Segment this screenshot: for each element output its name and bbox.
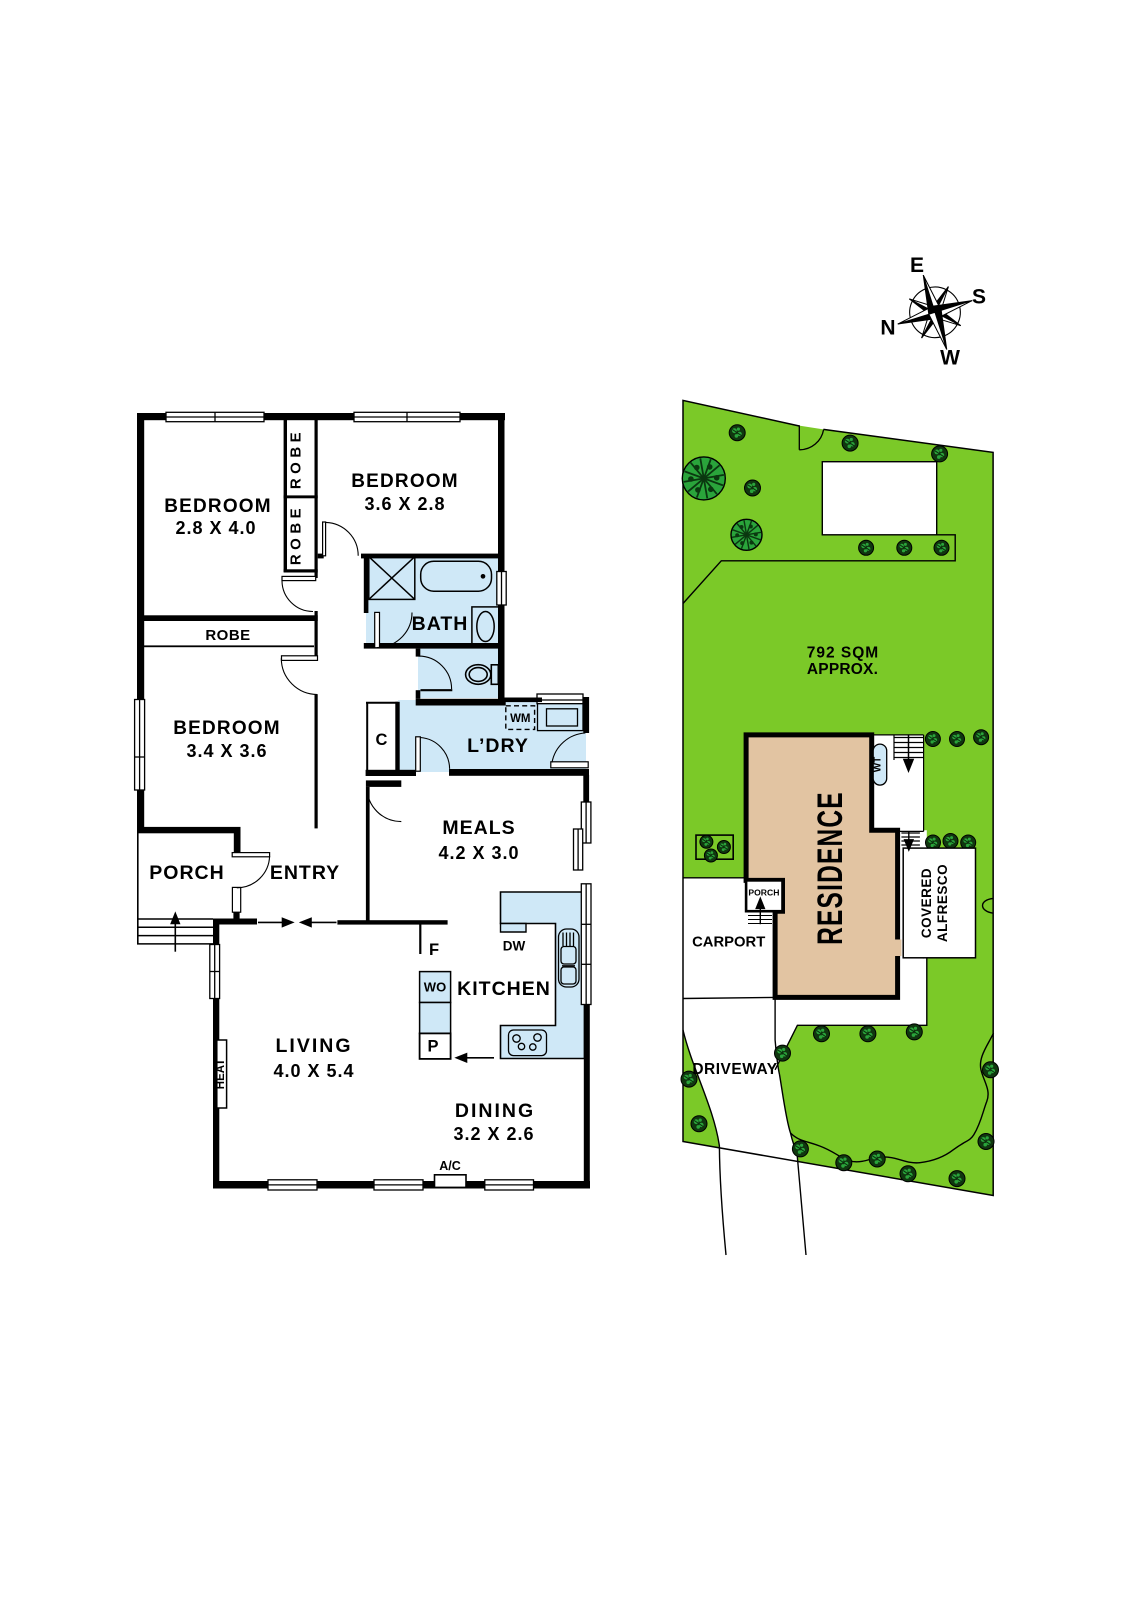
svg-text:A/C: A/C — [439, 1159, 461, 1173]
svg-text:3.4 X 3.6: 3.4 X 3.6 — [186, 741, 267, 761]
svg-text:APPROX.: APPROX. — [807, 661, 878, 678]
svg-text:ENTRY: ENTRY — [270, 862, 340, 884]
svg-text:4.0 X 5.4: 4.0 X 5.4 — [273, 1061, 354, 1081]
svg-text:COVERED: COVERED — [919, 868, 934, 938]
svg-text:RESIDENCE: RESIDENCE — [812, 791, 850, 945]
svg-text:BEDROOM: BEDROOM — [164, 496, 272, 517]
svg-text:PORCH: PORCH — [149, 862, 224, 884]
svg-text:4.2 X 3.0: 4.2 X 3.0 — [438, 843, 519, 863]
svg-text:PORCH: PORCH — [748, 888, 779, 898]
svg-text:CARPORT: CARPORT — [692, 935, 765, 951]
svg-text:792 SQM: 792 SQM — [807, 645, 879, 662]
svg-text:MEALS: MEALS — [442, 817, 515, 839]
svg-text:2.8 X 4.0: 2.8 X 4.0 — [175, 518, 256, 538]
svg-text:N: N — [880, 317, 895, 340]
svg-text:WO: WO — [424, 980, 446, 995]
svg-text:HEAT: HEAT — [215, 1059, 227, 1089]
svg-text:WT: WT — [873, 757, 884, 773]
svg-text:E: E — [910, 254, 924, 277]
svg-text:DINING: DINING — [455, 1100, 535, 1122]
svg-text:P: P — [427, 1038, 438, 1056]
svg-text:ROBE: ROBE — [205, 627, 250, 644]
svg-text:KITCHEN: KITCHEN — [457, 978, 551, 1000]
svg-text:ROBE: ROBE — [288, 504, 305, 565]
svg-text:LIVING: LIVING — [275, 1035, 352, 1057]
svg-text:DRIVEWAY: DRIVEWAY — [692, 1061, 777, 1078]
svg-text:L’DRY: L’DRY — [467, 735, 529, 757]
svg-text:WM: WM — [510, 713, 530, 725]
svg-text:3.2 X 2.6: 3.2 X 2.6 — [453, 1124, 534, 1144]
svg-text:3.6 X 2.8: 3.6 X 2.8 — [364, 494, 445, 514]
svg-text:DW: DW — [503, 939, 526, 954]
svg-text:W: W — [940, 347, 960, 370]
svg-text:BATH: BATH — [412, 613, 469, 635]
svg-text:F: F — [429, 941, 439, 959]
svg-text:S: S — [972, 286, 986, 309]
svg-text:C: C — [376, 731, 388, 749]
svg-text:ROBE: ROBE — [288, 428, 305, 489]
svg-text:ALFRESCO: ALFRESCO — [935, 864, 950, 942]
svg-text:BEDROOM: BEDROOM — [351, 471, 459, 492]
svg-text:BEDROOM: BEDROOM — [173, 718, 281, 739]
